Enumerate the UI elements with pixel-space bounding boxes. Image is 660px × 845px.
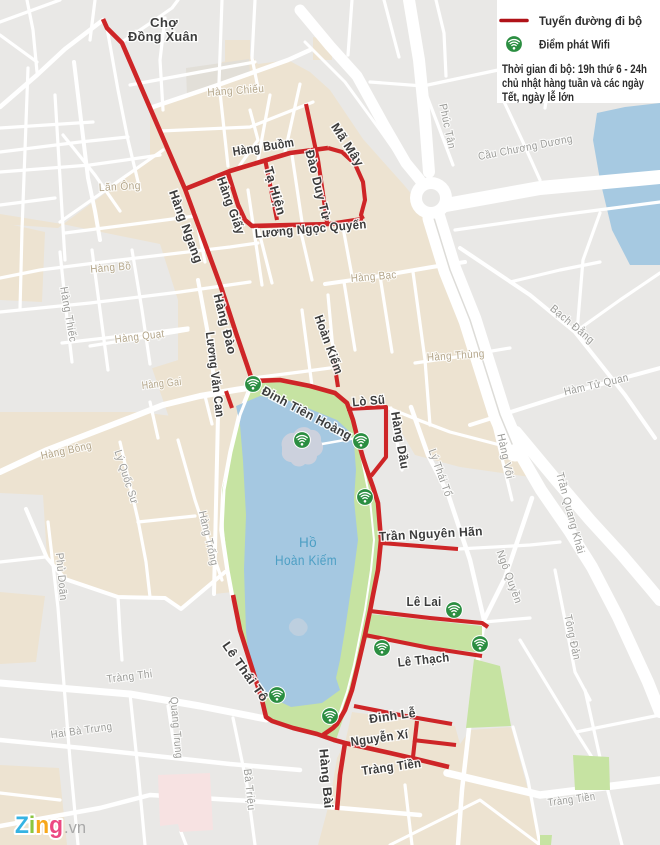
- svg-text:Zing: Zing: [15, 812, 63, 839]
- svg-text:Lãn Ông: Lãn Ông: [99, 179, 142, 194]
- svg-text:Đồng Xuân: Đồng Xuân: [128, 30, 198, 44]
- svg-text:Thời gian đi bộ: 19h thứ 6 - 2: Thời gian đi bộ: 19h thứ 6 - 24h: [502, 63, 647, 76]
- svg-text:Tuyến đường đi bộ: Tuyến đường đi bộ: [539, 14, 642, 28]
- svg-text:Lê Lai: Lê Lai: [407, 595, 442, 609]
- svg-text:Hoàn Kiếm: Hoàn Kiếm: [275, 553, 337, 568]
- svg-text:Điểm phát Wifi: Điểm phát Wifi: [539, 38, 610, 52]
- svg-text:chủ nhật hàng tuần và các ngày: chủ nhật hàng tuần và các ngày: [502, 77, 644, 90]
- svg-text:Chợ: Chợ: [150, 16, 178, 30]
- svg-text:Lò Sũ: Lò Sũ: [352, 393, 386, 410]
- svg-text:Hồ: Hồ: [299, 535, 317, 550]
- svg-text:Tết, ngày lễ lớn: Tết, ngày lễ lớn: [502, 91, 574, 104]
- svg-text:.vn: .vn: [64, 818, 86, 837]
